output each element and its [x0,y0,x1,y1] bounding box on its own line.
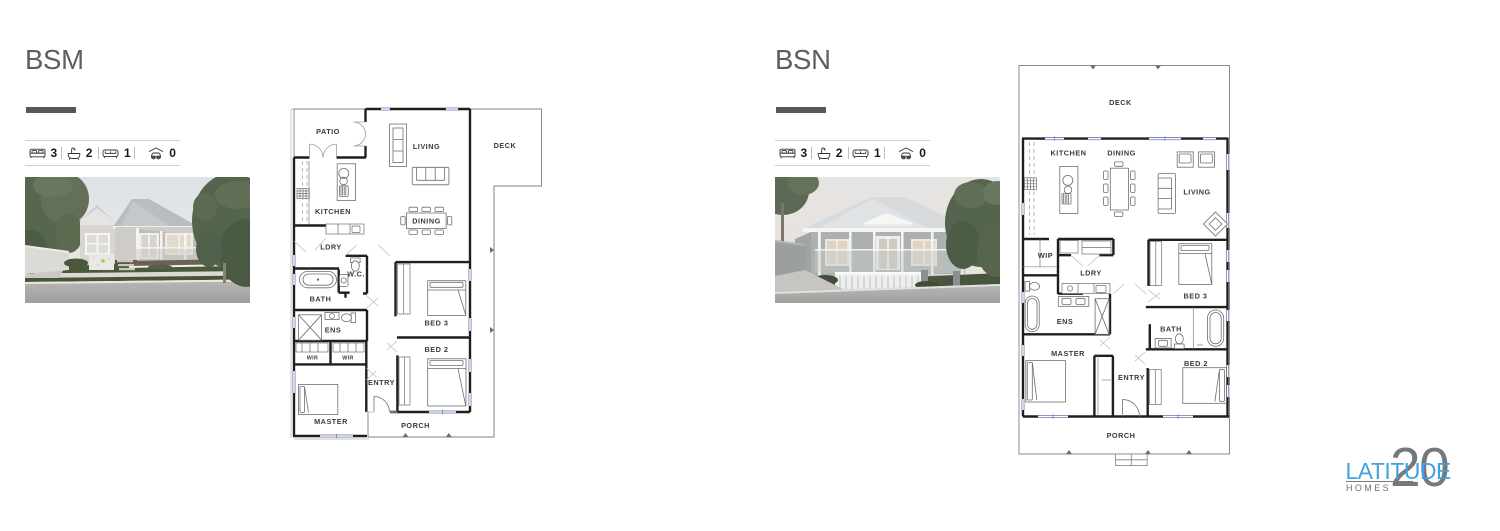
svg-text:ENS: ENS [1057,317,1074,326]
svg-text:DECK: DECK [494,141,517,150]
svg-text:BED 3: BED 3 [1184,292,1208,301]
svg-text:MASTER: MASTER [1051,349,1085,358]
svg-text:BED 2: BED 2 [1184,359,1208,368]
svg-text:DECK: DECK [1109,98,1132,107]
svg-text:WIR: WIR [307,356,318,362]
svg-text:KITCHEN: KITCHEN [1051,149,1087,158]
svg-text:PORCH: PORCH [401,421,430,430]
svg-text:DINING: DINING [412,217,441,226]
svg-text:KITCHEN: KITCHEN [315,207,351,216]
svg-text:ENTRY: ENTRY [368,378,395,387]
svg-text:MASTER: MASTER [314,417,348,426]
svg-text:WIP: WIP [1038,251,1053,260]
svg-text:LDRY: LDRY [320,243,342,252]
svg-text:LDRY: LDRY [1080,269,1102,278]
svg-text:W.C.: W.C. [347,270,365,279]
svg-text:BATH: BATH [1160,325,1182,334]
svg-text:PATIO: PATIO [316,127,340,136]
svg-text:LIVING: LIVING [413,142,440,151]
svg-text:BED 3: BED 3 [425,319,449,328]
svg-text:ENS: ENS [325,326,342,335]
svg-text:BED 2: BED 2 [425,345,449,354]
svg-text:ENTRY: ENTRY [1118,373,1145,382]
svg-text:WIR: WIR [342,356,353,362]
svg-text:LIVING: LIVING [1183,188,1210,197]
svg-text:DINING: DINING [1107,149,1136,158]
svg-text:PORCH: PORCH [1107,431,1136,440]
svg-text:BATH: BATH [310,295,332,304]
